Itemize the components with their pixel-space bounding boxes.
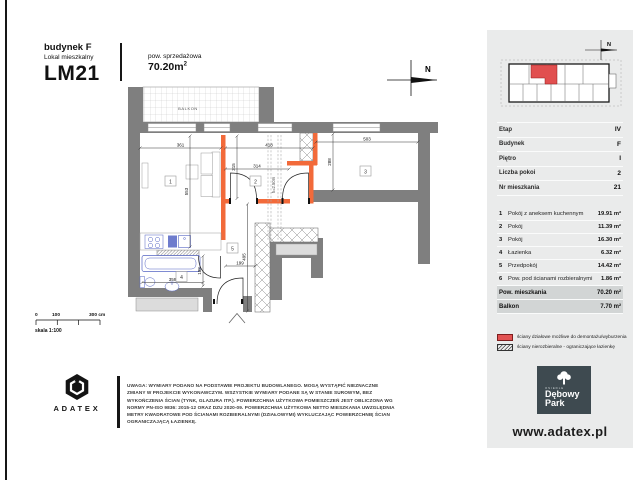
kitchen-counter — [140, 233, 221, 250]
sales-area-label: pow. sprzedażowa — [148, 53, 238, 60]
north-arrow-icon: N — [383, 52, 441, 98]
sink-icon — [168, 236, 191, 248]
developer-brand-text: ADATEX — [40, 404, 114, 413]
building-overview-map: N — [495, 36, 631, 112]
disclaimer-text: UWAGA: WYMIARY PODANO NA PODSTAWIE PROJE… — [127, 382, 395, 426]
scale-tick-100: 100 — [52, 313, 60, 318]
dim-553: 553 — [184, 187, 189, 195]
dim-199: 199 — [236, 260, 244, 265]
room-number-5: 5 — [231, 246, 234, 252]
door-room3 — [283, 173, 309, 199]
room-number-1: 1 — [169, 179, 172, 185]
balcony: BALKON — [128, 87, 274, 122]
info-table: Etap IV Budynek F Piętro I Liczba pokoi … — [497, 122, 623, 196]
sales-area-value: 70.20m2 — [148, 61, 238, 73]
info-row-etap: Etap IV — [497, 123, 623, 138]
room-row-4: 4 Łazienka 6.32 m² — [497, 247, 623, 260]
terrace-slab — [136, 298, 198, 311]
balcony-label: BALKON — [178, 106, 198, 111]
info-row-liczba-pokoi: Liczba pokoi 2 — [497, 167, 623, 182]
dim-314: 314 — [253, 163, 261, 168]
hexagon-knot-icon — [62, 372, 92, 402]
website-url: www.adatex.pl — [487, 424, 633, 439]
door-entrance — [217, 278, 243, 304]
dim-359: 359 — [169, 277, 177, 282]
dim-503: 503 — [363, 136, 371, 141]
info-row-pietro: Piętro I — [497, 152, 623, 167]
estate-logo: OSIEDLE Dębowy Park — [537, 366, 591, 414]
sideboard-icon — [142, 163, 148, 188]
scale-bar: 0 100 300 cm skala 1:100 — [35, 313, 115, 334]
dim-288: 288 — [327, 158, 332, 166]
legend-item-demolishable: ściany działowe możliwe do demontażu/wyb… — [497, 332, 629, 342]
scale-label: skala 1:100 — [35, 328, 115, 334]
room-table: 1 Pokój z aneksem kuchennym 19.91 m² 2 P… — [497, 208, 623, 314]
room-row-2: 2 Pokój 11.39 m² — [497, 221, 623, 234]
sidebar: N Etap IV Budynek F Piętro I Liczba poko… — [487, 30, 633, 448]
building-label: budynek F — [44, 42, 119, 53]
room-number-3: 3 — [364, 169, 367, 175]
north-label: N — [425, 65, 431, 74]
dim-315: 315 — [231, 163, 236, 171]
unit-code: LM21 — [44, 63, 119, 84]
hatched-wall-swatch — [497, 344, 513, 351]
dim-361: 361 — [177, 142, 185, 147]
table-icon — [186, 165, 198, 179]
room-row-5: 5 Przedpokój 14.42 m² — [497, 260, 623, 273]
ceiling-height-note: h=2.50m — [271, 176, 276, 193]
info-row-nr-mieszkania: Nr mieszkania 21 — [497, 181, 623, 196]
footer-divider — [117, 376, 120, 428]
wall-legend: ściany działowe możliwe do demontażu/wyb… — [497, 332, 629, 352]
red-wall-swatch — [497, 334, 513, 341]
header-area-block: pow. sprzedażowa 70.20m2 — [148, 53, 238, 73]
room-number-2: 2 — [254, 179, 257, 185]
entrance-chevron-icon — [229, 314, 245, 324]
sofa-icon — [212, 152, 220, 197]
non-demountable-walls — [157, 133, 318, 312]
dim-418: 418 — [265, 142, 273, 147]
bathroom-fixtures — [140, 256, 200, 292]
mini-north-icon: N — [585, 40, 617, 60]
estate-name-line2: Park — [537, 399, 591, 408]
corridor-inset — [276, 244, 317, 255]
scale-tick-0: 0 — [35, 313, 38, 318]
room-row-1: 1 Pokój z aneksem kuchennym 19.91 m² — [497, 208, 623, 221]
unit-type-label: Lokal mieszkalny — [44, 54, 119, 61]
floor-plan: BALKON — [112, 80, 472, 355]
header-unit-block: budynek F Lokal mieszkalny LM21 — [44, 42, 119, 84]
windows — [148, 124, 380, 132]
summary-row-apartment: Pow. mieszkania 70.20 m² — [497, 286, 623, 300]
scale-bar-line — [35, 319, 105, 327]
room-row-6: 6 Pow. pod ścianami rozbieralnymi 1.86 m… — [497, 273, 623, 286]
svg-text:N: N — [607, 42, 611, 48]
page-border-line — [5, 0, 7, 480]
tree-icon — [555, 370, 573, 385]
dim-188: 188 — [197, 267, 202, 275]
bathtub-icon — [142, 256, 200, 272]
legend-item-non-demountable: ściany nierozbieralne - ograniczające ła… — [497, 342, 629, 352]
summary-row-balcony: Balkon 7.70 m² — [497, 300, 623, 314]
room-number-4: 4 — [180, 275, 183, 281]
door-bathroom — [199, 256, 221, 278]
room-row-3: 3 Pokój 16.30 m² — [497, 234, 623, 247]
washbasin-icon — [165, 282, 179, 291]
living-room-furniture — [142, 152, 220, 197]
developer-logo: ADATEX — [40, 372, 114, 413]
scale-tick-300: 300 cm — [89, 313, 105, 318]
info-row-budynek: Budynek F — [497, 138, 623, 153]
header-divider — [120, 43, 122, 81]
